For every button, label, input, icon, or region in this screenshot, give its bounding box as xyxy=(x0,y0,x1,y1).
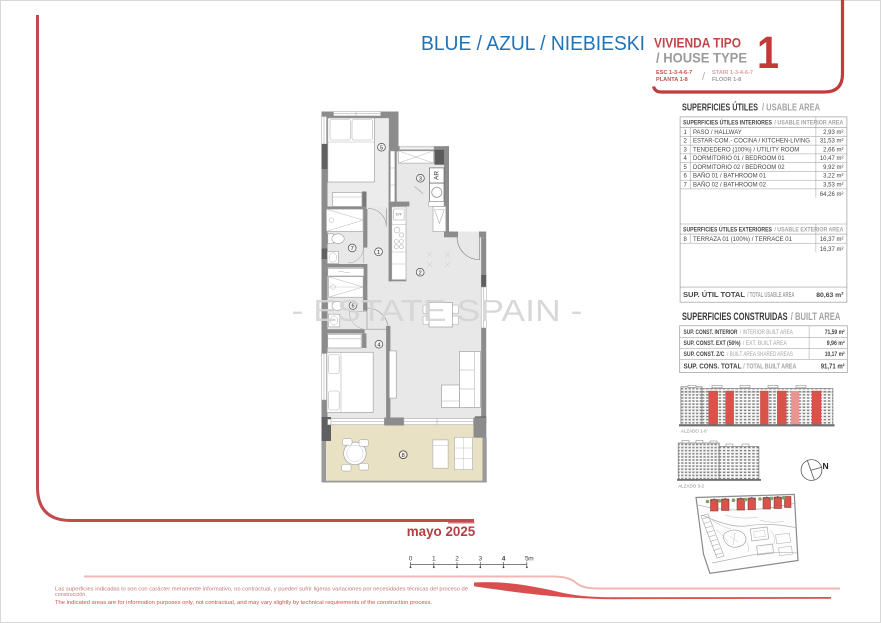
svg-text:/ USABLE INTERIOR AREA: / USABLE INTERIOR AREA xyxy=(774,120,843,127)
svg-text:SUP. ÚTIL TOTAL: SUP. ÚTIL TOTAL xyxy=(683,290,746,299)
svg-text:/ INTERIOR BUILT AREA: / INTERIOR BUILT AREA xyxy=(740,329,794,336)
svg-text:4: 4 xyxy=(377,342,380,348)
svg-text:0: 0 xyxy=(409,556,413,563)
svg-text:2,66 m²: 2,66 m² xyxy=(823,147,843,153)
svg-text:DORMITORIO 02 / BEDROOM 02: DORMITORIO 02 / BEDROOM 02 xyxy=(693,165,785,171)
svg-text:ESTAR-COM.- COCINA / KITCHEN-L: ESTAR-COM.- COCINA / KITCHEN-LIVING xyxy=(693,139,810,145)
svg-text:SUPERFICIES CONSTRUIDAS: SUPERFICIES CONSTRUIDAS xyxy=(682,311,788,323)
svg-text:2: 2 xyxy=(419,270,422,276)
svg-text:5: 5 xyxy=(380,145,383,151)
svg-text:10,47 m²: 10,47 m² xyxy=(820,156,844,162)
svg-text:ESC 1-3-4-6-7: ESC 1-3-4-6-7 xyxy=(656,70,692,76)
svg-text:- ESTATE SPAIN -: - ESTATE SPAIN - xyxy=(292,293,583,328)
svg-text:10,17 m²: 10,17 m² xyxy=(825,351,845,358)
svg-text:The indicated areas are for in: The indicated areas are for information … xyxy=(55,600,432,606)
svg-text:9,92 m²: 9,92 m² xyxy=(823,165,843,171)
svg-text:SUP. CONS. TOTAL: SUP. CONS. TOTAL xyxy=(684,362,742,371)
svg-text:/ USABLE EXTERIOR AREA: / USABLE EXTERIOR AREA xyxy=(774,227,843,234)
svg-text:/ TOTAL USABLE AREA: / TOTAL USABLE AREA xyxy=(747,292,794,299)
svg-text:91,71 m²: 91,71 m² xyxy=(821,362,845,371)
svg-text:AR: AR xyxy=(433,171,440,180)
svg-text:SUPERFICIES ÚTILES: SUPERFICIES ÚTILES xyxy=(682,101,758,114)
svg-text:m: m xyxy=(528,556,533,563)
svg-text:TENDEDERO (100%) / UTILITY ROO: TENDEDERO (100%) / UTILITY ROOM xyxy=(693,147,799,153)
svg-text:SUP. CONST. EXT (50%): SUP. CONST. EXT (50%) xyxy=(684,340,741,347)
svg-text:3,53 m²: 3,53 m² xyxy=(823,182,843,188)
svg-text:16,37 m²: 16,37 m² xyxy=(820,237,844,243)
svg-text:TERRAZA 01 (100%) / TERRACE 01: TERRAZA 01 (100%) / TERRACE 01 xyxy=(693,237,793,243)
svg-text:Las superficies indicadas lo s: Las superficies indicadas lo son con car… xyxy=(55,587,468,593)
svg-text:N: N xyxy=(823,461,829,471)
svg-text:SUP. CONST. INTERIOR: SUP. CONST. INTERIOR xyxy=(684,329,738,336)
svg-text:31,53 m²: 31,53 m² xyxy=(820,139,844,145)
svg-text:1: 1 xyxy=(432,556,436,563)
svg-text:SUP. CONST. Z/C: SUP. CONST. Z/C xyxy=(684,351,725,358)
svg-text:SUPERFICIES ÚTILES INTERIORES: SUPERFICIES ÚTILES INTERIORES xyxy=(683,120,772,127)
svg-text:/ HOUSE TYPE: / HOUSE TYPE xyxy=(656,51,747,66)
svg-text:/ BUILT AREA SHARED AREAS: / BUILT AREA SHARED AREAS xyxy=(727,351,793,358)
svg-text:PLANTA 1-8: PLANTA 1-8 xyxy=(656,77,688,83)
svg-text:/ USABLE AREA: / USABLE AREA xyxy=(762,102,820,114)
svg-text:1: 1 xyxy=(377,250,380,256)
svg-text:D/F: D/F xyxy=(396,212,403,217)
svg-text:3,22 m²: 3,22 m² xyxy=(823,174,843,180)
svg-text:BLUE / AZUL / NIEBIESKI: BLUE / AZUL / NIEBIESKI xyxy=(421,32,645,55)
svg-text:9,96 m²: 9,96 m² xyxy=(827,340,845,347)
svg-text:8: 8 xyxy=(402,453,405,459)
svg-text:64,26 m²: 64,26 m² xyxy=(820,192,844,198)
svg-text:3: 3 xyxy=(478,556,482,563)
svg-text:/ TOTAL BUILT AREA: / TOTAL BUILT AREA xyxy=(743,362,796,371)
svg-text:FLOOR 1-8: FLOOR 1-8 xyxy=(712,77,741,83)
svg-text:VIVIENDA TIPO: VIVIENDA TIPO xyxy=(654,36,741,51)
svg-text:SUPERFICIES ÚTILES EXTERIORES: SUPERFICIES ÚTILES EXTERIORES xyxy=(683,227,772,234)
svg-text:DORMITORIO 01 / BEDROOM 01: DORMITORIO 01 / BEDROOM 01 xyxy=(693,156,785,162)
svg-text:construcción.: construcción. xyxy=(55,592,87,598)
svg-text:PASO / HALLWAY: PASO / HALLWAY xyxy=(693,130,742,136)
svg-text:7: 7 xyxy=(351,246,354,252)
svg-text:BAÑO 01 / BATHROOM 01: BAÑO 01 / BATHROOM 01 xyxy=(693,173,767,180)
svg-text:2: 2 xyxy=(455,556,459,563)
svg-text:BAÑO 02 / BATHROOM 02: BAÑO 02 / BATHROOM 02 xyxy=(693,181,767,188)
svg-text:71,59 m²: 71,59 m² xyxy=(825,329,845,336)
svg-text:4: 4 xyxy=(502,556,506,563)
svg-text:1: 1 xyxy=(757,27,779,78)
svg-text:3: 3 xyxy=(419,176,422,182)
svg-text:80,63 m²: 80,63 m² xyxy=(816,292,844,299)
svg-text:ALZADO 1-6': ALZADO 1-6' xyxy=(681,429,708,434)
svg-text:STAIR 1-3-4-6-7: STAIR 1-3-4-6-7 xyxy=(712,70,753,76)
svg-text:/ BUILT AREA: / BUILT AREA xyxy=(791,311,841,323)
svg-text:2,93 m²: 2,93 m² xyxy=(823,130,843,136)
svg-text:16,37 m²: 16,37 m² xyxy=(820,247,844,253)
svg-text:/ EXT. BUILT AREA: / EXT. BUILT AREA xyxy=(743,340,788,347)
svg-text:ALZADO 3-2: ALZADO 3-2 xyxy=(678,484,704,489)
svg-text:mayo 2025: mayo 2025 xyxy=(407,523,476,539)
